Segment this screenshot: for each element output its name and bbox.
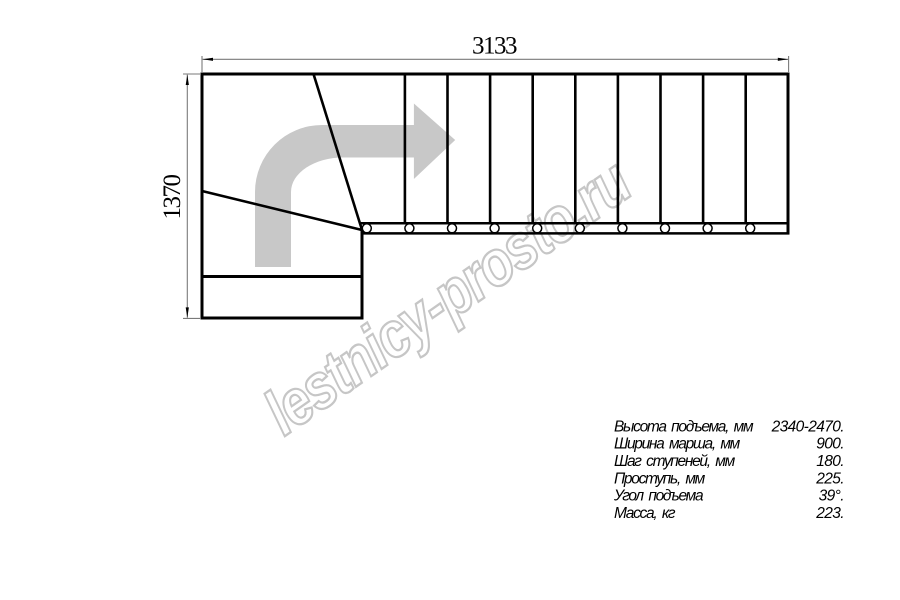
svg-text:Высота подъема, мм: Высота подъема, мм	[614, 418, 754, 435]
svg-text:900.: 900.	[816, 436, 844, 453]
svg-text:2340-2470.: 2340-2470.	[771, 418, 844, 435]
svg-text:180.: 180.	[816, 453, 844, 470]
svg-text:Угол подъема: Угол подъема	[613, 488, 704, 505]
svg-text:Масса, кг: Масса, кг	[614, 505, 676, 522]
svg-text:39°.: 39°.	[819, 488, 844, 505]
svg-text:Ширина марша, мм: Ширина марша, мм	[614, 436, 741, 453]
svg-text:223.: 223.	[815, 505, 844, 522]
svg-text:225.: 225.	[815, 470, 844, 487]
svg-text:Шаг ступеней, мм: Шаг ступеней, мм	[614, 453, 736, 470]
svg-text:3133: 3133	[472, 32, 517, 59]
svg-text:Проступь, мм: Проступь, мм	[614, 470, 706, 487]
svg-text:1370: 1370	[159, 175, 186, 220]
